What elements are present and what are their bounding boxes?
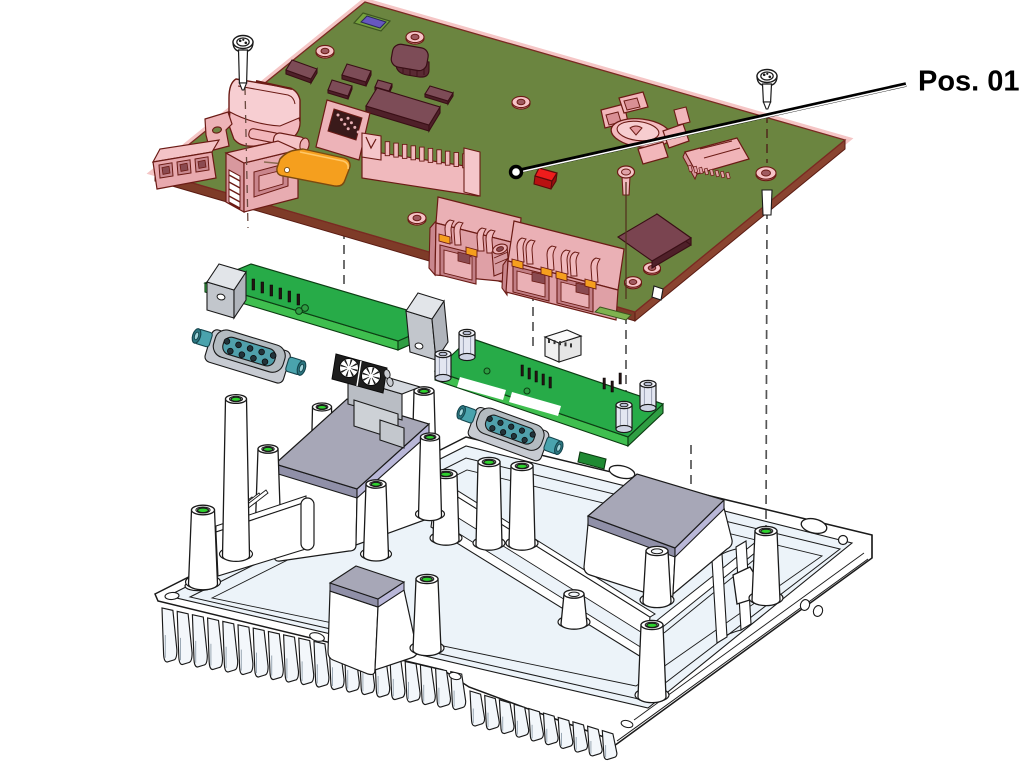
svg-text:Pos. 01: Pos. 01 <box>918 66 1020 98</box>
